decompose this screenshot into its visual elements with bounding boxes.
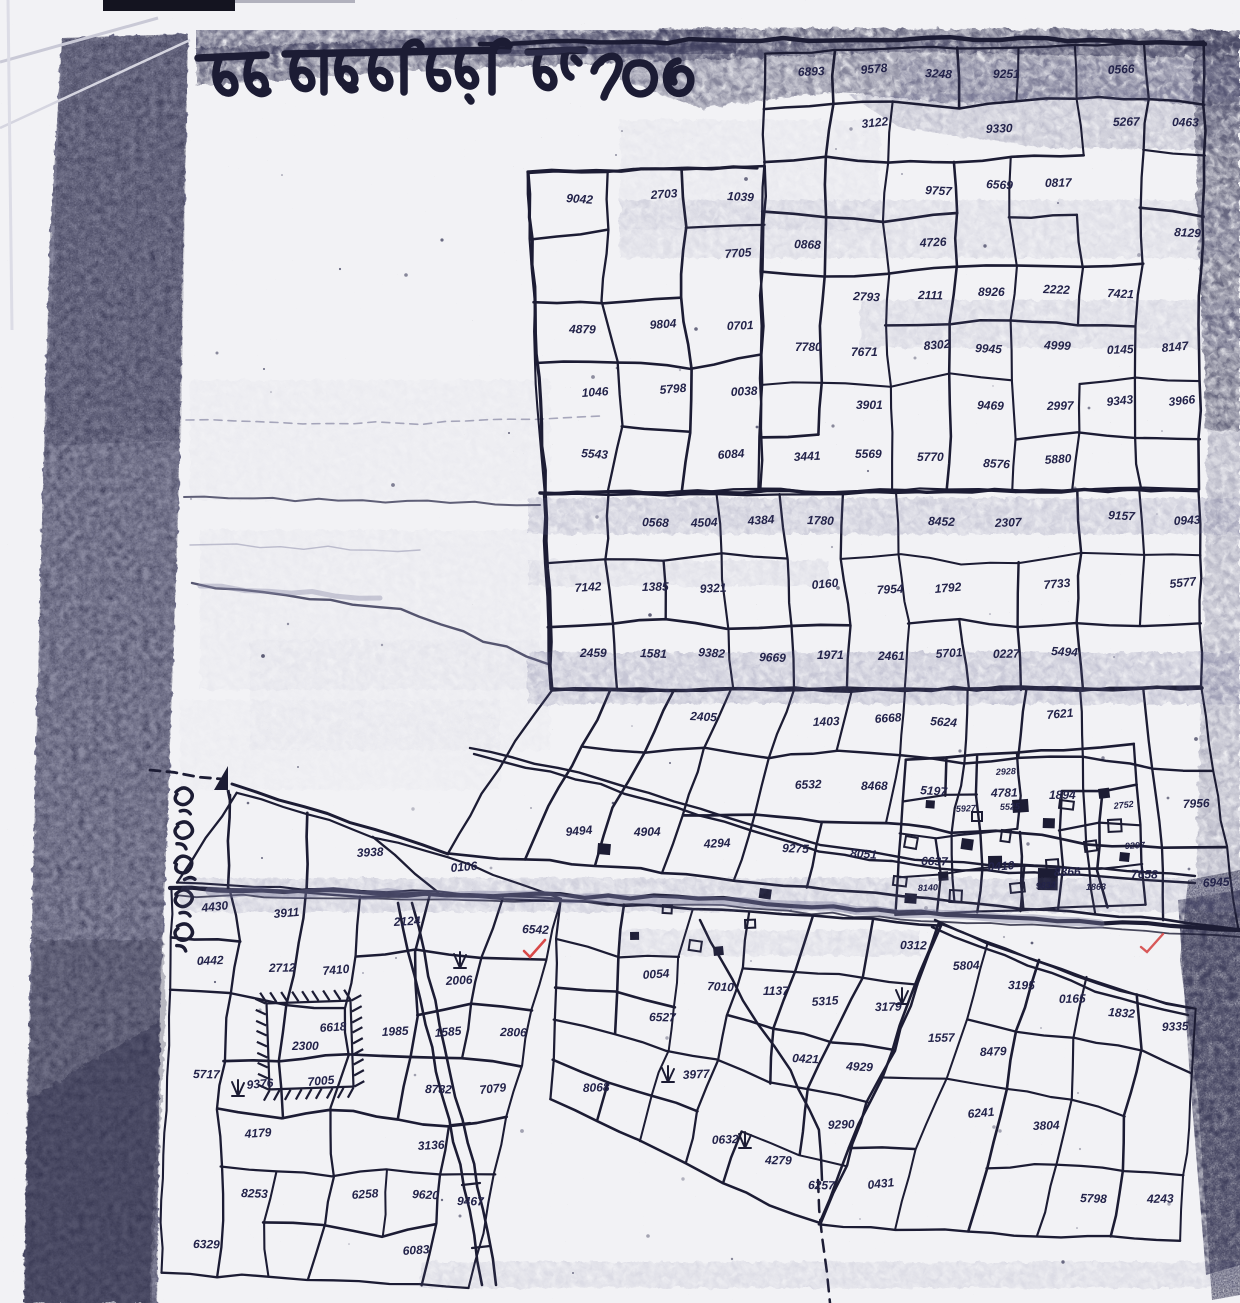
svg-text:7733: 7733 [1043,576,1071,592]
svg-text:0054: 0054 [642,966,670,982]
svg-text:9376: 9376 [246,1076,274,1092]
svg-text:6618: 6618 [319,1019,347,1035]
svg-text:4294: 4294 [702,836,731,851]
svg-text:7621: 7621 [1046,706,1074,722]
svg-text:9804: 9804 [649,316,677,332]
svg-text:9620: 9620 [412,1187,440,1202]
svg-text:9330: 9330 [986,121,1013,136]
svg-text:1046: 1046 [581,384,609,400]
svg-text:0038: 0038 [730,384,758,399]
svg-text:0868: 0868 [794,237,821,252]
svg-text:5525: 5525 [1000,801,1021,812]
svg-text:4384: 4384 [746,512,775,528]
svg-text:9321: 9321 [699,581,727,596]
svg-text:5701: 5701 [935,645,963,661]
svg-text:2222: 2222 [1042,282,1070,297]
svg-text:4726: 4726 [918,235,947,250]
svg-text:6532: 6532 [795,777,822,792]
svg-text:0943: 0943 [1173,513,1201,528]
svg-text:2712: 2712 [268,961,296,975]
svg-text:1039: 1039 [727,189,755,204]
svg-text:9382: 9382 [698,645,726,661]
svg-text:1403: 1403 [813,714,840,729]
svg-text:0106: 0106 [450,859,478,875]
svg-text:4904: 4904 [633,825,661,839]
svg-text:0568: 0568 [642,515,669,530]
svg-text:4243: 4243 [1146,1192,1174,1206]
svg-text:5624: 5624 [930,714,958,730]
svg-text:8576: 8576 [983,456,1011,471]
svg-text:6257: 6257 [808,1178,836,1192]
svg-text:2461: 2461 [877,649,905,663]
svg-text:6084: 6084 [717,446,745,462]
svg-text:9494: 9494 [565,823,593,839]
svg-text:5494: 5494 [1051,644,1079,659]
svg-text:6945: 6945 [1202,875,1230,890]
svg-text:2300: 2300 [291,1039,319,1053]
svg-text:1137: 1137 [763,984,790,998]
svg-text:4929: 4929 [845,1059,874,1074]
svg-text:3966: 3966 [1168,392,1196,409]
svg-text:4430: 4430 [200,898,229,915]
svg-text:7956: 7956 [1183,796,1210,811]
svg-text:4879: 4879 [568,322,596,336]
svg-text:9669: 9669 [759,650,786,665]
svg-text:0566: 0566 [1107,62,1135,77]
svg-text:2124: 2124 [392,914,421,929]
svg-text:3122: 3122 [861,114,889,131]
svg-text:5315: 5315 [811,993,839,1009]
svg-text:9757: 9757 [925,183,954,198]
svg-text:5927: 5927 [956,803,978,814]
svg-text:1863: 1863 [1086,882,1106,892]
svg-text:8051: 8051 [850,846,878,862]
svg-text:2703: 2703 [649,186,678,202]
svg-text:3938: 3938 [356,845,384,860]
svg-text:7705: 7705 [724,245,752,261]
svg-text:3179: 3179 [875,1000,902,1014]
svg-text:5804: 5804 [953,958,980,973]
svg-text:1894: 1894 [1049,788,1076,802]
svg-text:7079: 7079 [479,1080,507,1097]
svg-text:7671: 7671 [851,345,878,359]
svg-text:7005: 7005 [307,1073,335,1089]
svg-text:1557: 1557 [928,1031,956,1045]
svg-text:8366: 8366 [1054,865,1081,879]
svg-text:1581: 1581 [640,646,667,661]
svg-text:9343: 9343 [1106,392,1134,409]
svg-text:0160: 0160 [811,576,839,592]
svg-text:9157: 9157 [1108,508,1137,523]
svg-text:7780: 7780 [795,340,822,354]
svg-text:1832: 1832 [1108,1005,1136,1021]
svg-text:4179: 4179 [243,1125,272,1141]
svg-text:0701: 0701 [727,318,754,333]
svg-text:5267: 5267 [1113,115,1141,129]
svg-text:3901: 3901 [856,398,883,412]
svg-text:0632: 0632 [712,1132,739,1147]
svg-text:2405: 2405 [689,709,718,724]
svg-text:9834: 9834 [1035,880,1056,891]
svg-text:9469: 9469 [977,398,1004,413]
svg-text:0165: 0165 [1059,992,1086,1006]
svg-text:9042: 9042 [566,191,594,207]
svg-text:9251: 9251 [993,67,1020,81]
svg-text:0431: 0431 [867,1175,895,1192]
svg-text:6637: 6637 [921,854,949,868]
svg-text:1792: 1792 [934,580,962,596]
svg-text:2997: 2997 [1046,399,1075,414]
svg-text:8452: 8452 [928,514,955,529]
svg-text:7421: 7421 [1107,286,1135,301]
svg-text:8068: 8068 [583,1080,610,1095]
svg-text:4999: 4999 [1043,338,1071,353]
svg-text:2793: 2793 [852,289,881,304]
svg-text:8129: 8129 [1174,225,1202,240]
svg-text:7142: 7142 [574,579,602,595]
svg-text:2459: 2459 [579,646,607,660]
svg-text:9275: 9275 [782,841,809,856]
svg-text:6241: 6241 [967,1105,995,1121]
svg-text:0442: 0442 [197,953,224,968]
svg-text:5798: 5798 [1080,1191,1107,1206]
svg-text:2928: 2928 [995,766,1017,777]
svg-text:9290: 9290 [828,1117,855,1132]
svg-text:5569: 5569 [855,447,882,461]
svg-text:1780: 1780 [807,513,834,528]
svg-text:6893: 6893 [798,64,825,79]
svg-text:5880: 5880 [1044,451,1072,467]
svg-text:0421: 0421 [792,1051,820,1066]
svg-text:2806: 2806 [499,1025,527,1039]
svg-text:5543: 5543 [581,446,609,462]
svg-text:3248: 3248 [925,66,953,81]
svg-text:5717: 5717 [193,1067,221,1081]
svg-text:3441: 3441 [793,449,821,464]
svg-text:7010: 7010 [707,979,735,994]
svg-text:6668: 6668 [874,710,902,726]
svg-text:6083: 6083 [402,1242,430,1258]
svg-text:7954: 7954 [876,582,904,597]
svg-text:9335: 9335 [1162,1019,1189,1034]
svg-text:8479: 8479 [980,1044,1007,1059]
svg-text:2307: 2307 [994,515,1023,530]
svg-text:8140: 8140 [918,882,938,893]
svg-text:6527: 6527 [649,1010,677,1024]
svg-text:4781: 4781 [990,786,1018,800]
svg-text:3195: 3195 [1008,978,1035,992]
svg-text:9945: 9945 [975,341,1003,356]
svg-text:3911: 3911 [273,905,300,921]
svg-text:8147: 8147 [1161,339,1190,355]
svg-text:5798: 5798 [659,381,687,397]
svg-text:5577: 5577 [1169,574,1198,591]
svg-text:2006: 2006 [444,973,473,988]
svg-text:0410: 0410 [987,858,1015,874]
svg-text:1385: 1385 [642,580,669,594]
svg-text:8468: 8468 [861,779,888,793]
svg-text:0463: 0463 [1172,115,1199,129]
svg-text:7658: 7658 [1131,867,1158,881]
svg-text:9578: 9578 [860,61,888,77]
svg-text:8302: 8302 [923,337,951,353]
svg-text:3136: 3136 [417,1138,445,1153]
svg-text:1585: 1585 [434,1024,462,1040]
svg-text:5770: 5770 [917,450,944,464]
svg-text:6542: 6542 [522,922,549,937]
svg-text:1985: 1985 [381,1024,409,1039]
svg-text:7410: 7410 [322,962,350,978]
svg-text:8253: 8253 [241,1186,268,1201]
svg-text:6258: 6258 [351,1186,379,1202]
svg-text:9467: 9467 [457,1194,485,1208]
svg-text:4279: 4279 [764,1153,792,1167]
svg-text:1971: 1971 [817,648,844,662]
svg-text:3804: 3804 [1033,1118,1060,1133]
svg-text:0227: 0227 [993,647,1021,661]
svg-text:0312: 0312 [900,938,927,952]
svg-text:5197: 5197 [920,783,949,799]
svg-text:8926: 8926 [978,285,1005,299]
svg-text:0145: 0145 [1107,342,1134,357]
svg-text:6569: 6569 [986,177,1014,192]
svg-text:4504: 4504 [690,515,718,530]
svg-text:8782: 8782 [425,1082,452,1096]
svg-text:2111: 2111 [917,288,943,302]
svg-text:3977: 3977 [682,1067,711,1082]
svg-text:9297: 9297 [1125,840,1147,851]
svg-text:0817: 0817 [1045,176,1073,190]
svg-text:6329: 6329 [193,1237,220,1251]
